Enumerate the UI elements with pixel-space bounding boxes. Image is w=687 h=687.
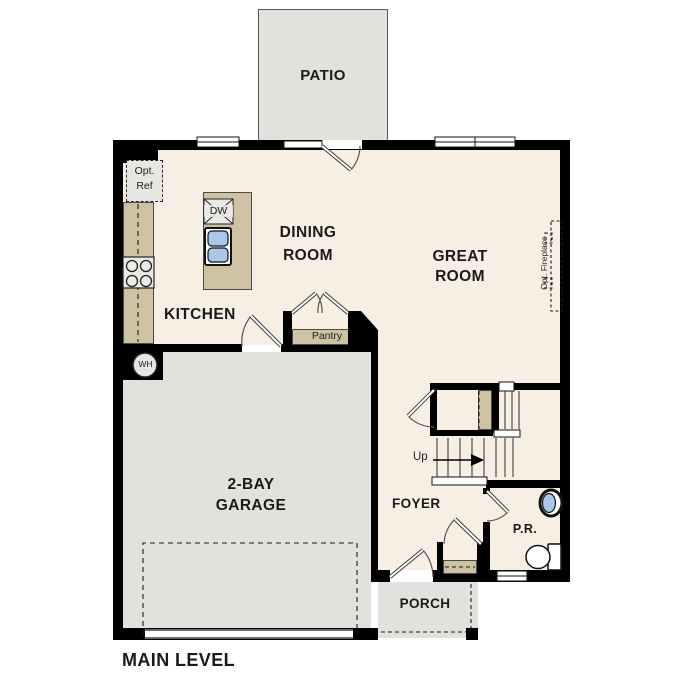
water-heater-label: WH [133, 359, 158, 369]
powder-room-label: P.R. [506, 522, 544, 536]
stair-closet-door-arc [408, 416, 434, 427]
stair-mid-rail [494, 430, 520, 437]
sink-basin-bottom [208, 248, 228, 262]
plan-linework [0, 0, 687, 687]
powder-sink-basin [543, 494, 556, 513]
patio-door-sill [284, 141, 322, 148]
plan-title: MAIN LEVEL [122, 650, 235, 671]
floor-plan: PATIO DINING ROOM GREAT ROOM KITCHEN 2-B… [0, 0, 687, 687]
dishwasher-label: DW [204, 205, 233, 217]
porch-label: PORCH [397, 596, 453, 611]
pantry-label: Pantry [293, 330, 361, 342]
patio-door-opening [322, 140, 362, 149]
kitchen-garage-door-arc [242, 316, 251, 346]
garage-parking-dashed [143, 543, 357, 635]
stair-direction-arrowhead [471, 454, 484, 466]
sink-basin-top [208, 231, 228, 246]
stairs-up-label: Up [413, 451, 428, 463]
opt-fireplace-label: Opt. Fireplace [539, 218, 549, 308]
stair-wall-opening [499, 382, 514, 391]
dining-room-label: DINING ROOM [258, 221, 358, 267]
porch-post [466, 628, 478, 640]
front-door-arc [423, 550, 433, 577]
kitchen-label: KITCHEN [164, 306, 236, 324]
stair-bottom-rail [432, 477, 487, 485]
opt-fireplace-dashed [551, 221, 562, 311]
patio-door-arc [351, 146, 360, 170]
great-room-label: GREAT ROOM [408, 247, 512, 287]
garage-label: 2-BAY GARAGE [191, 474, 311, 516]
toilet-bowl [526, 546, 550, 569]
opt-ref-label: Opt. Ref [127, 164, 162, 194]
powder-room-door-arc [487, 512, 508, 521]
patio-label: PATIO [258, 67, 388, 84]
entry-closet-door-arc [444, 519, 455, 544]
foyer-label: FOYER [392, 496, 441, 511]
